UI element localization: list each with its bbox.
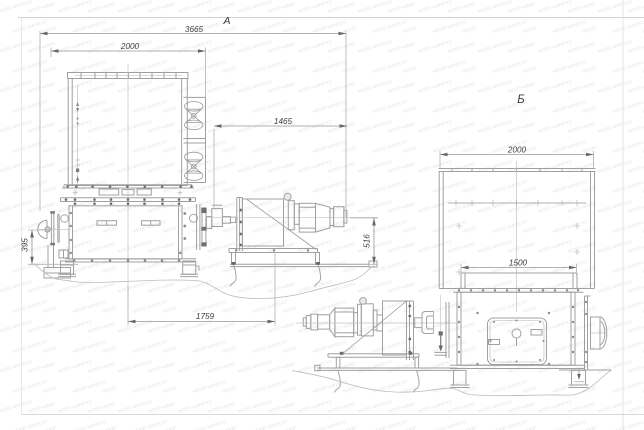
svg-text:1500: 1500: [509, 259, 528, 268]
svg-text:395: 395: [21, 238, 30, 252]
svg-text:Б: Б: [517, 94, 525, 106]
svg-text:516: 516: [363, 234, 372, 248]
svg-text:А: А: [222, 15, 230, 27]
svg-text:2000: 2000: [120, 42, 140, 51]
svg-text:3665: 3665: [185, 25, 204, 34]
svg-text:1759: 1759: [196, 312, 215, 321]
svg-text:2000: 2000: [507, 146, 527, 155]
svg-text:1465: 1465: [274, 117, 293, 126]
